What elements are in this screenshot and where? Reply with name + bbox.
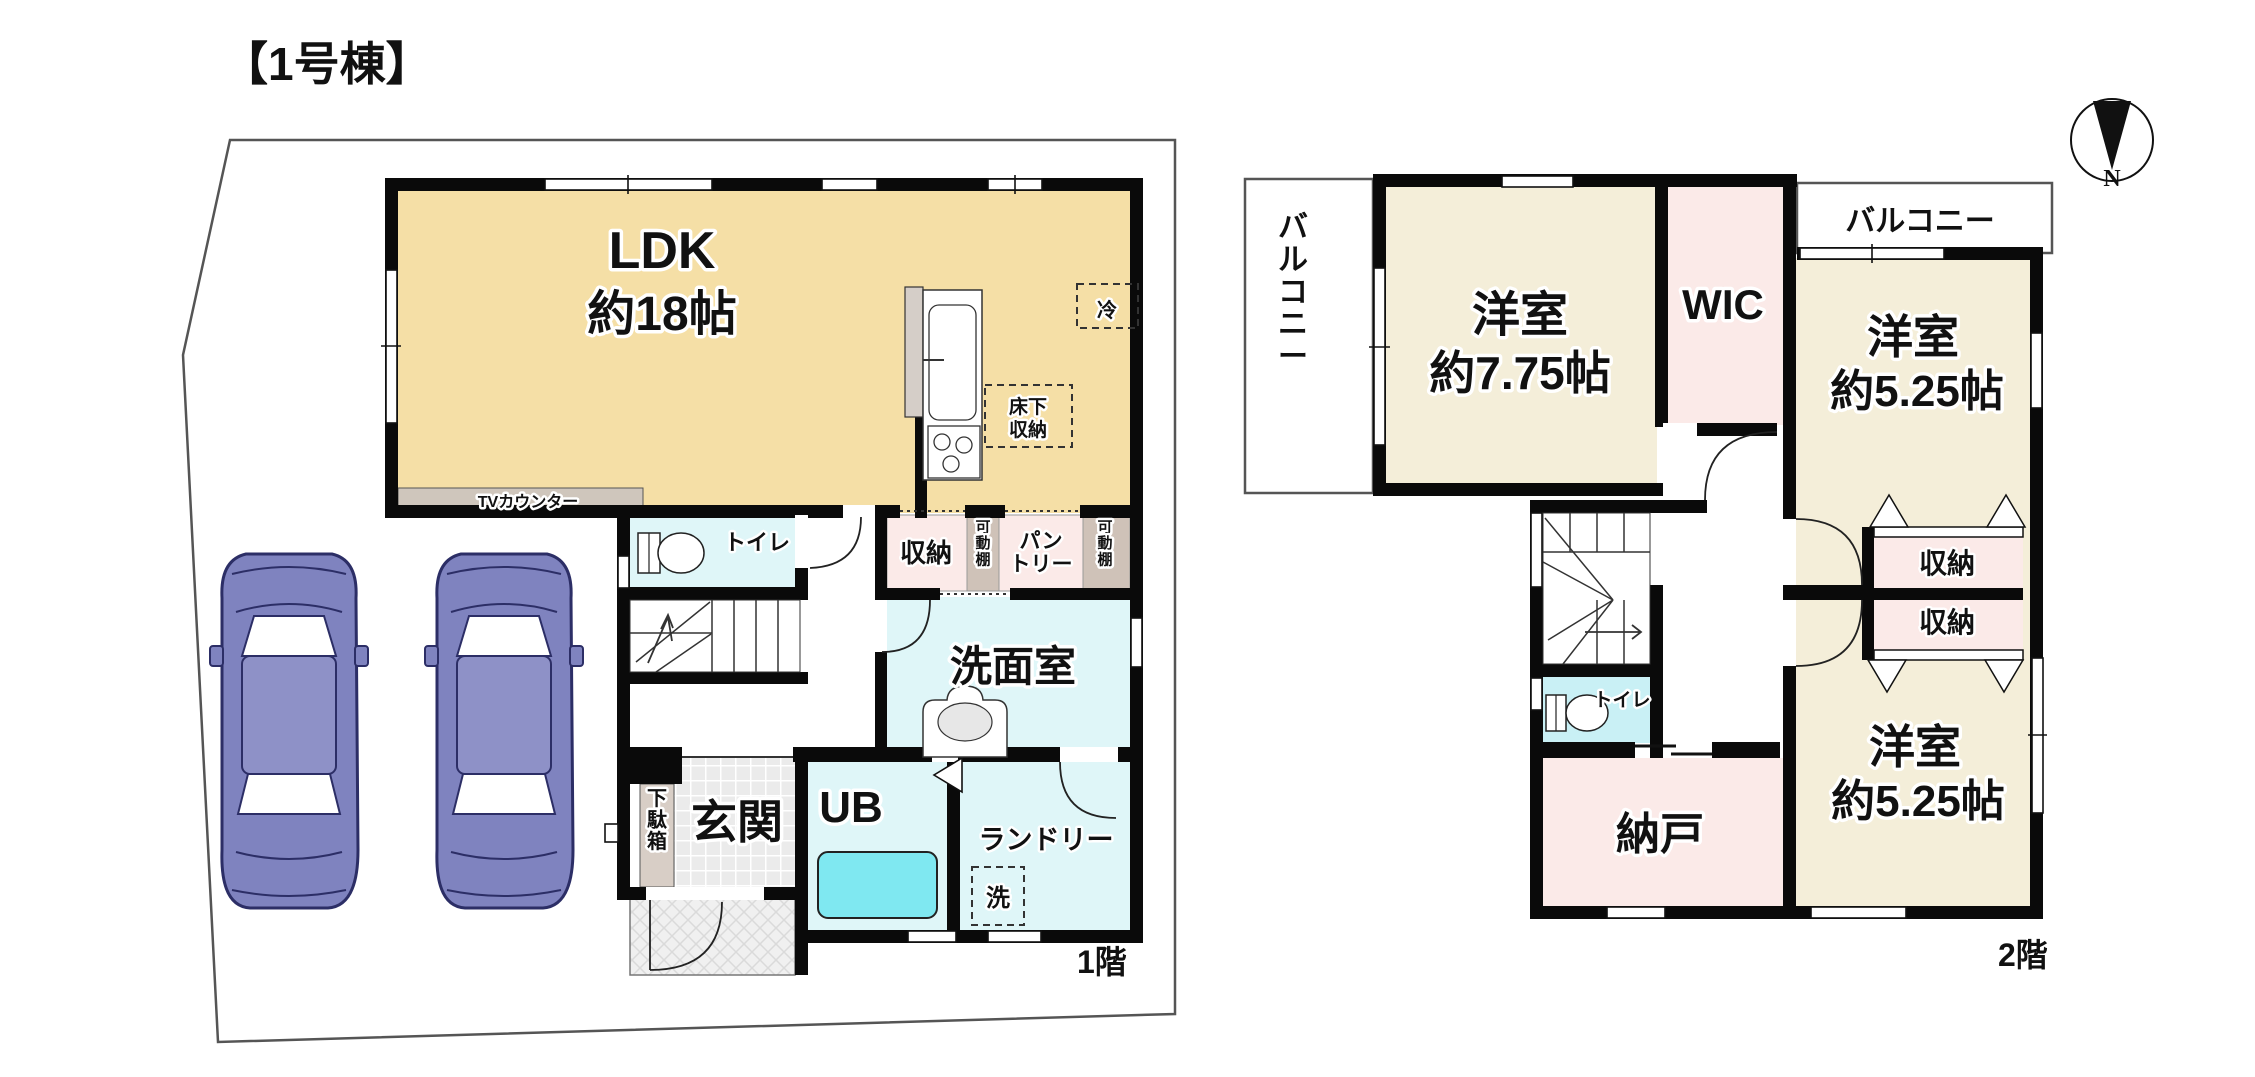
label-underfloor-1: 床下	[1009, 395, 1047, 418]
label-movable-shelf-2: 可動棚	[1097, 519, 1112, 568]
label-toilet-2f: トイレ	[1593, 690, 1650, 711]
label-floor1: 1階	[1077, 944, 1127, 980]
label-shoe-box: 下駄箱	[647, 788, 668, 853]
label-washroom: 洗面室	[950, 643, 1076, 690]
page-title: 【1号棟】	[222, 38, 432, 90]
label-balcony-top: バルコニー	[1845, 205, 1994, 238]
compass-north-label: N	[2103, 166, 2121, 192]
label-tv-counter: TVカウンター	[478, 493, 578, 511]
label-washer: 洗	[986, 885, 1010, 912]
storeroom-sliding-door	[1635, 746, 1712, 754]
closet-lower-track	[1874, 650, 2023, 660]
label-unit-bath: UB	[819, 783, 883, 832]
label-pantry-1: パン	[1019, 530, 1062, 553]
label-bedroom1: 洋室	[1472, 289, 1568, 342]
label-underfloor-2: 収納	[1009, 418, 1047, 441]
bathtub	[818, 852, 937, 918]
label-floor2: 2階	[1998, 937, 2048, 973]
compass: N	[2071, 99, 2153, 192]
label-storage-1f: 収納	[900, 538, 952, 568]
closet-upper-track	[1874, 527, 2023, 537]
room-ldk	[392, 185, 1136, 513]
label-pantry-2: トリー	[1010, 553, 1073, 576]
label-bedroom2-size: 約5.25帖	[1830, 367, 2004, 416]
label-ldk-size: 約18帖	[587, 288, 736, 341]
floor2-plan: バルコニー バルコニー 洋室 約7.75帖 WIC 洋室 約5.25帖 収納 収…	[1245, 174, 2052, 973]
label-wic: WIC	[1682, 281, 1764, 328]
entrance-porch	[630, 898, 795, 975]
label-entrance: 玄関	[691, 796, 783, 848]
car-1	[210, 554, 368, 908]
stairs-2f	[1543, 513, 1650, 664]
floor-plan-drawing: 【1号棟】	[0, 0, 2255, 1072]
label-bedroom3: 洋室	[1869, 721, 1961, 773]
label-bedroom2: 洋室	[1867, 311, 1959, 363]
floor-plan-page: 【1号棟】	[0, 0, 2255, 1072]
label-closet-lower: 収納	[1919, 606, 1975, 638]
label-movable-shelf-1: 可動棚	[975, 519, 990, 568]
label-ldk: LDK	[609, 222, 716, 280]
label-laundry: ランドリー	[979, 825, 1114, 855]
label-bedroom3-size: 約5.25帖	[1831, 777, 2005, 826]
toilet-fixture-1f	[638, 533, 704, 573]
kitchen-stove	[928, 426, 980, 478]
label-fridge: 冷	[1097, 298, 1117, 322]
balcony-left	[1245, 179, 1373, 493]
floor1-plan: LDK 約18帖 TVカウンター トイレ 収納 可動棚 パン トリー 可動棚 床…	[183, 140, 1175, 1042]
label-storeroom: 納戸	[1616, 810, 1704, 859]
floor2-door-gaps	[1663, 423, 1796, 666]
car-2	[425, 554, 583, 908]
label-bedroom1-size: 約7.75帖	[1429, 347, 1611, 399]
kitchen-back-panel	[905, 287, 923, 417]
kitchen-sink	[929, 305, 976, 420]
label-toilet-1f: トイレ	[724, 530, 790, 555]
label-closet-upper: 収納	[1919, 547, 1975, 579]
label-balcony-left: バルコニー	[1278, 211, 1308, 374]
